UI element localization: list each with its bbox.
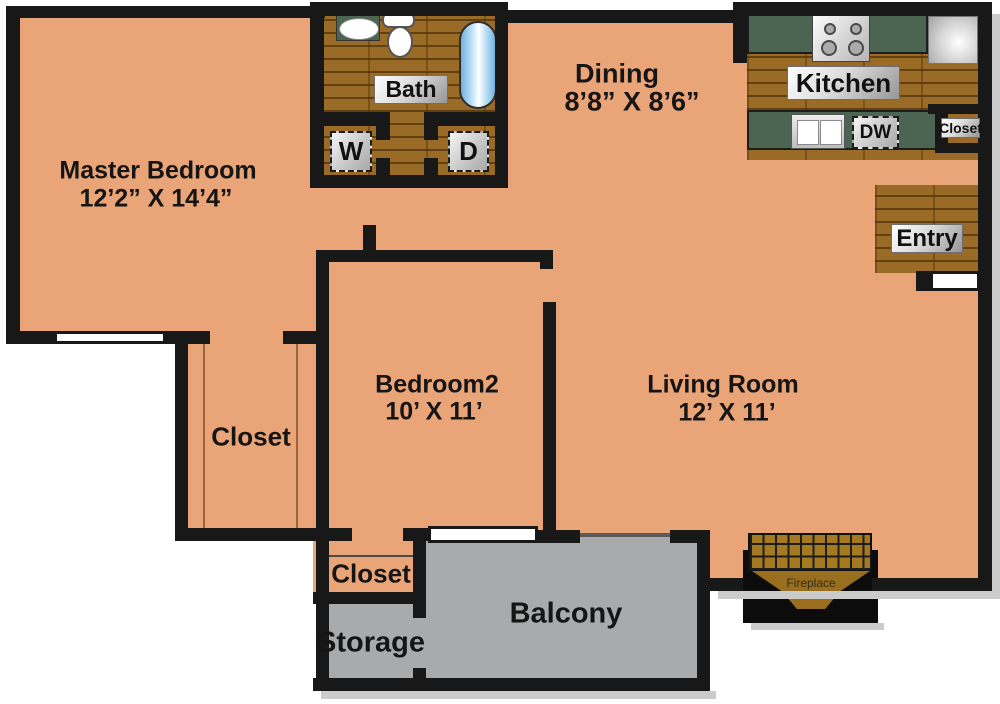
- wall-bedroom2-top-jamb: [540, 262, 553, 269]
- bedroom2-closet-label: Closet: [331, 559, 410, 590]
- wall-right-outer: [978, 2, 992, 592]
- balcony-label: Balcony: [510, 598, 623, 631]
- wall-bath-left: [310, 2, 324, 188]
- wall-walkin-closet-bottom: [175, 528, 329, 541]
- wall-bottom-outer: [313, 678, 710, 691]
- walkin-closet-rod-left: [203, 344, 205, 528]
- shadow-bottom-right: [718, 591, 1000, 599]
- kitchen-label: Kitchen: [796, 68, 891, 99]
- fireplace-hearth-icon: [748, 533, 872, 572]
- entry-label: Entry: [896, 225, 957, 253]
- kitchen-closet-label-plate: Closet: [941, 118, 980, 138]
- wall-wd-sep-left-upper: [376, 112, 390, 140]
- toilet-bowl-icon: [387, 26, 413, 58]
- wall-top-kitchen: [733, 2, 992, 16]
- bath-label-plate: Bath: [374, 75, 448, 104]
- master-bedroom-label: Master Bedroom: [59, 157, 256, 186]
- wall-kitchen-left-stub: [733, 10, 747, 63]
- dishwasher-label: DW: [860, 122, 892, 144]
- dining-label: Dining: [575, 59, 659, 90]
- bathtub-icon: [459, 21, 497, 109]
- wall-bedroom2-right: [543, 302, 556, 543]
- wall-wd-top-right: [436, 112, 508, 126]
- dishwasher-box: DW: [852, 116, 899, 149]
- wall-bedroom2-bottom-a: [316, 528, 352, 541]
- wall-bedroom2-closet-bottom: [313, 592, 426, 604]
- dining-dims: 8’8” X 8’6”: [564, 87, 699, 118]
- stove-icon: [812, 14, 870, 62]
- wall-balcony-top-mid: [535, 530, 580, 543]
- shadow-fireplace: [751, 623, 884, 630]
- kitchen-sink-icon: [791, 114, 845, 149]
- wall-left-outer: [6, 6, 20, 344]
- bath-sink-icon: [339, 18, 379, 40]
- floor-plan: Fireplace Bath Kit: [0, 0, 1000, 704]
- wall-living-bottom-left: [697, 578, 743, 591]
- sliding-door: [428, 526, 538, 543]
- wall-top-dining: [500, 10, 740, 23]
- master-bedroom-dims: 12’2” X 14’4”: [80, 185, 233, 214]
- kitchen-label-plate: Kitchen: [787, 66, 900, 100]
- entry-label-plate: Entry: [891, 224, 963, 253]
- washer-box: W: [330, 131, 372, 172]
- wall-living-bottom-right: [872, 578, 992, 591]
- wall-top-bath: [310, 2, 508, 16]
- wall-bedroom2-top: [316, 250, 553, 262]
- bedroom2-closet-rod: [329, 555, 413, 557]
- wall-top-master: [6, 6, 325, 18]
- kitchen-closet-label: Closet: [939, 120, 982, 136]
- living-room-dims: 12’ X 11’: [678, 399, 775, 428]
- wall-wd-sep-right-upper: [424, 112, 438, 140]
- wall-storage-balcony-upper: [413, 530, 426, 618]
- wall-bath-right: [495, 2, 508, 188]
- master-window: [57, 334, 163, 341]
- bedroom2-label: Bedroom2: [375, 371, 499, 400]
- bath-label: Bath: [385, 76, 436, 103]
- storage-label: Storage: [317, 627, 425, 660]
- wall-kitchen-closet-bottom: [941, 143, 992, 153]
- balcony-rail-line: [580, 533, 670, 537]
- wall-interior-long: [316, 250, 329, 691]
- entry-door-opening: [933, 274, 977, 288]
- wall-wd-bottom: [310, 175, 508, 188]
- fireplace-label: Fireplace: [786, 576, 835, 590]
- living-room-label: Living Room: [647, 371, 798, 400]
- washer-label: W: [339, 136, 364, 167]
- shadow-right: [992, 14, 1000, 598]
- dryer-box: D: [448, 131, 489, 172]
- dryer-label: D: [459, 136, 478, 167]
- shadow-bottom-balcony: [321, 691, 716, 699]
- wall-walkin-closet-left: [175, 333, 188, 540]
- walkin-closet-rod-right: [296, 344, 298, 528]
- exterior-cutout-bottom-left: [0, 541, 313, 704]
- bedroom2-dims: 10’ X 11’: [385, 398, 482, 427]
- wall-storage-balcony-lower: [413, 668, 426, 691]
- wall-balcony-right: [697, 530, 710, 691]
- walkin-closet-label: Closet: [211, 422, 290, 453]
- refrigerator-icon: [928, 16, 978, 64]
